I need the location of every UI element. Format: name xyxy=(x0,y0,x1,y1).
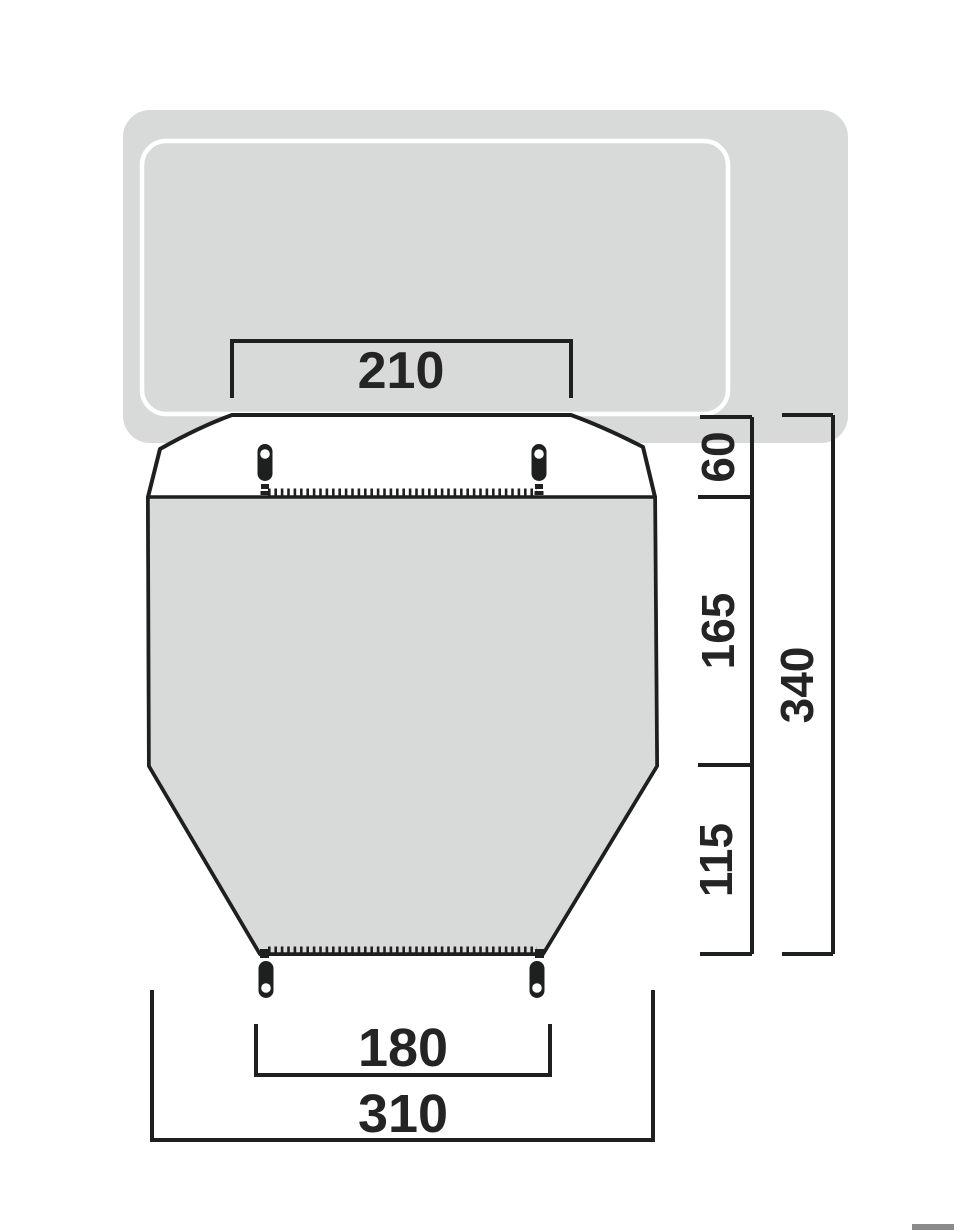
zipper-pull-bottom-right xyxy=(530,961,545,998)
dimension-value-310: 310 xyxy=(358,1084,448,1144)
zipper-pull-hole xyxy=(532,983,542,993)
dimension-value-210: 210 xyxy=(358,342,445,400)
zipper-pull-link xyxy=(261,491,270,495)
dimension-value-60: 60 xyxy=(692,431,744,482)
zipper-end-stop xyxy=(260,949,269,958)
zipper-pull-hole xyxy=(534,449,544,459)
dimension-value-340: 340 xyxy=(771,647,823,724)
dimension-value-165: 165 xyxy=(692,593,744,670)
zipper-end-stop xyxy=(535,949,544,958)
tent-dimension-diagram: 210 60 165 115 340 180 310 xyxy=(0,0,954,1230)
tent-groundsheet xyxy=(148,497,657,954)
dimension-value-115: 115 xyxy=(690,823,742,897)
scrollbar-corner[interactable] xyxy=(912,1224,954,1230)
zipper-pull-hole xyxy=(261,983,271,993)
dimension-total-depth: 340 xyxy=(771,415,833,954)
dimension-depth-segments: 60 165 115 xyxy=(690,417,752,954)
zipper-pull-link xyxy=(261,484,269,489)
zipper-pull-hole xyxy=(260,449,270,459)
zipper-bottom xyxy=(259,949,545,998)
diagram-canvas: 210 60 165 115 340 180 310 xyxy=(0,0,954,1230)
dimension-rear-width: 180 xyxy=(256,1018,550,1078)
dimension-value-180: 180 xyxy=(358,1018,448,1078)
zipper-pull-link xyxy=(535,484,543,489)
zipper-pull-link xyxy=(535,491,544,495)
zipper-pull-bottom-left xyxy=(259,961,274,998)
